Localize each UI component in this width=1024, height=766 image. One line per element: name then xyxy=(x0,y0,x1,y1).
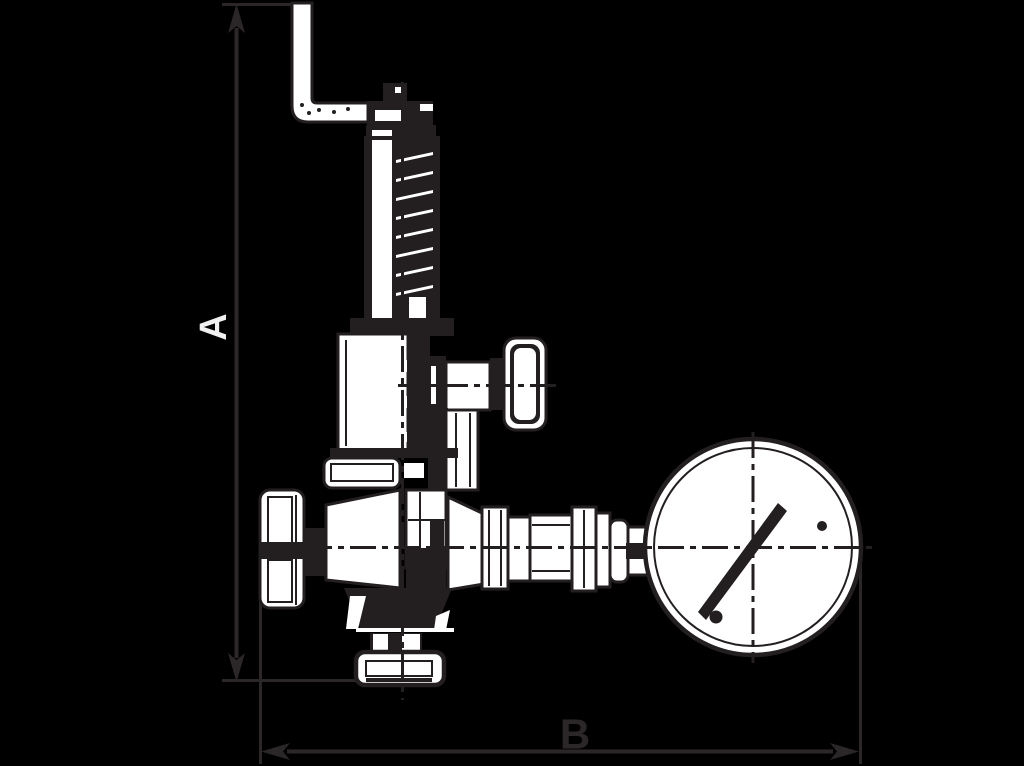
bracket-knurl-dot xyxy=(300,103,304,107)
collar xyxy=(596,513,610,587)
connector-round xyxy=(610,520,628,582)
gauge-marker-dot xyxy=(817,521,827,531)
hand-knob-groove xyxy=(260,542,304,559)
bracket-knurl-dot xyxy=(332,110,336,114)
dimension-a-label: A xyxy=(193,313,235,340)
cap-face-highlight xyxy=(375,110,401,121)
bonnet-right-wall xyxy=(408,334,430,452)
cap-face-highlight xyxy=(420,104,433,111)
body-cone-left xyxy=(326,490,400,588)
bracket-knurl-dot xyxy=(317,108,321,112)
funnel-rim xyxy=(356,628,454,632)
mid-flange-nut xyxy=(324,458,400,488)
valve-technical-drawing: A B xyxy=(0,0,1024,766)
outlet-flange-shadow xyxy=(366,678,432,682)
body-seat-detail xyxy=(430,520,444,566)
bracket-knurl-dot xyxy=(307,111,311,115)
dimension-b-label: B xyxy=(560,711,590,758)
bonnet-face xyxy=(338,334,408,452)
body-seat-cone xyxy=(448,497,484,590)
bonnet xyxy=(338,334,430,452)
drawing-canvas: A B xyxy=(0,0,1024,766)
cap-flange-highlight xyxy=(372,130,392,136)
bracket-knurl-dot xyxy=(346,107,350,111)
gauge-pivot-dot xyxy=(710,611,723,624)
mid-flange-highlight xyxy=(404,463,424,478)
spring-housing-bore xyxy=(372,140,392,318)
